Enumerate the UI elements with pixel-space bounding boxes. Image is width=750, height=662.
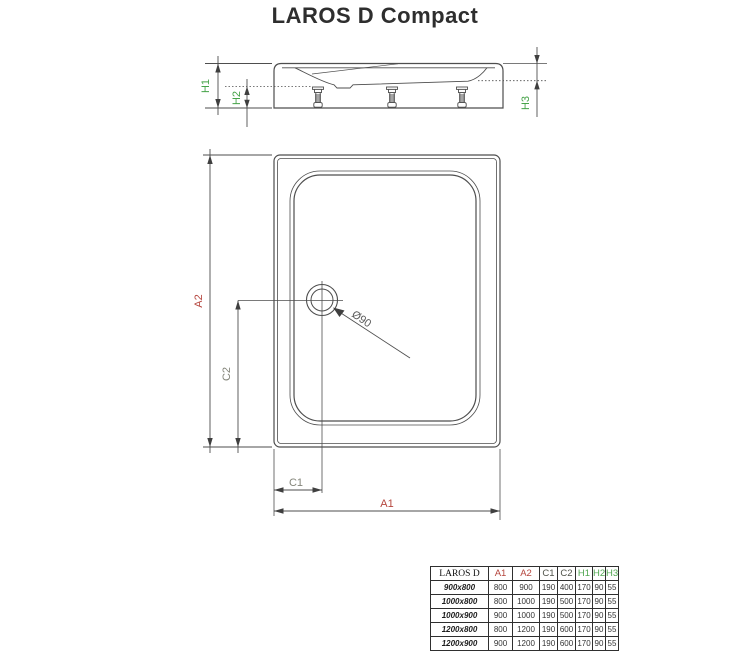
plan-view: Ø90	[193, 149, 500, 520]
table-cell: 600	[558, 637, 576, 651]
table-cell: 1200	[513, 637, 540, 651]
side-tray-outline	[274, 64, 503, 109]
table-cell: 1000	[513, 595, 540, 609]
dim-label-h1: H1	[200, 79, 212, 93]
col-header-h2: H2	[593, 567, 606, 581]
dim-label-h3: H3	[520, 96, 532, 110]
table-cell: 55	[606, 595, 619, 609]
dimension-h1	[205, 56, 272, 115]
table-cell: 800	[489, 623, 513, 637]
table-cell: 190	[540, 609, 558, 623]
col-header-h3: H3	[606, 567, 619, 581]
table-header-row: LAROS D A1 A2 C1 C2 H1 H2 H3	[431, 567, 619, 581]
table-cell: 55	[606, 581, 619, 595]
table-cell: 55	[606, 637, 619, 651]
table-cell: 900	[513, 581, 540, 595]
table-cell: 170	[576, 595, 593, 609]
table-cell: 190	[540, 595, 558, 609]
technical-drawing-page: LAROS D Compact	[0, 0, 750, 662]
dim-label-a2: A2	[193, 294, 205, 307]
col-header-a2: A2	[513, 567, 540, 581]
size-cell: 1200x800	[431, 623, 489, 637]
table-cell: 90	[593, 623, 606, 637]
table-cell: 170	[576, 581, 593, 595]
dim-label-c2: C2	[221, 367, 233, 381]
table-cell: 600	[558, 623, 576, 637]
table-cell: 90	[593, 581, 606, 595]
table-row: 1200x800 800 1200 190 600 170 90 55	[431, 623, 619, 637]
dim-label-h2: H2	[231, 91, 243, 105]
table-cell: 400	[558, 581, 576, 595]
table-cell: 90	[593, 609, 606, 623]
dim-label-a1: A1	[380, 498, 393, 510]
side-view: H1 H2 H3	[200, 47, 547, 127]
dimension-a2	[203, 149, 272, 453]
table-cell: 190	[540, 623, 558, 637]
size-cell: 900x800	[431, 581, 489, 595]
col-header-a1: A1	[489, 567, 513, 581]
table-cell: 800	[489, 595, 513, 609]
table-cell: 190	[540, 637, 558, 651]
col-header-h1: H1	[576, 567, 593, 581]
table-cell: 55	[606, 609, 619, 623]
table-cell: 500	[558, 595, 576, 609]
size-cell: 1000x900	[431, 609, 489, 623]
table-row: 1200x900 900 1200 190 600 170 90 55	[431, 637, 619, 651]
product-name-header: LAROS D	[431, 567, 489, 581]
table-cell: 500	[558, 609, 576, 623]
table-cell: 1000	[513, 609, 540, 623]
size-cell: 1200x900	[431, 637, 489, 651]
col-header-c1: C1	[540, 567, 558, 581]
table-row: 1000x900 900 1000 190 500 170 90 55	[431, 609, 619, 623]
table-cell: 55	[606, 623, 619, 637]
dimension-c2	[235, 301, 240, 454]
col-header-c2: C2	[558, 567, 576, 581]
table-cell: 900	[489, 637, 513, 651]
table-cell: 190	[540, 581, 558, 595]
table-row: 1000x800 800 1000 190 500 170 90 55	[431, 595, 619, 609]
table-cell: 1200	[513, 623, 540, 637]
drawing-canvas: H1 H2 H3 Ø90	[0, 0, 750, 662]
table-cell: 170	[576, 609, 593, 623]
dim-label-c1: C1	[289, 477, 303, 489]
table-cell: 90	[593, 595, 606, 609]
size-cell: 1000x800	[431, 595, 489, 609]
dimension-h3	[534, 47, 539, 117]
table-cell: 90	[593, 637, 606, 651]
dimension-h2	[244, 79, 249, 127]
table-cell: 170	[576, 623, 593, 637]
table-row: 900x800 800 900 190 400 170 90 55	[431, 581, 619, 595]
table-cell: 900	[489, 609, 513, 623]
table-cell: 170	[576, 637, 593, 651]
dimensions-table: LAROS D A1 A2 C1 C2 H1 H2 H3 900x800 800…	[430, 566, 619, 651]
table-cell: 800	[489, 581, 513, 595]
